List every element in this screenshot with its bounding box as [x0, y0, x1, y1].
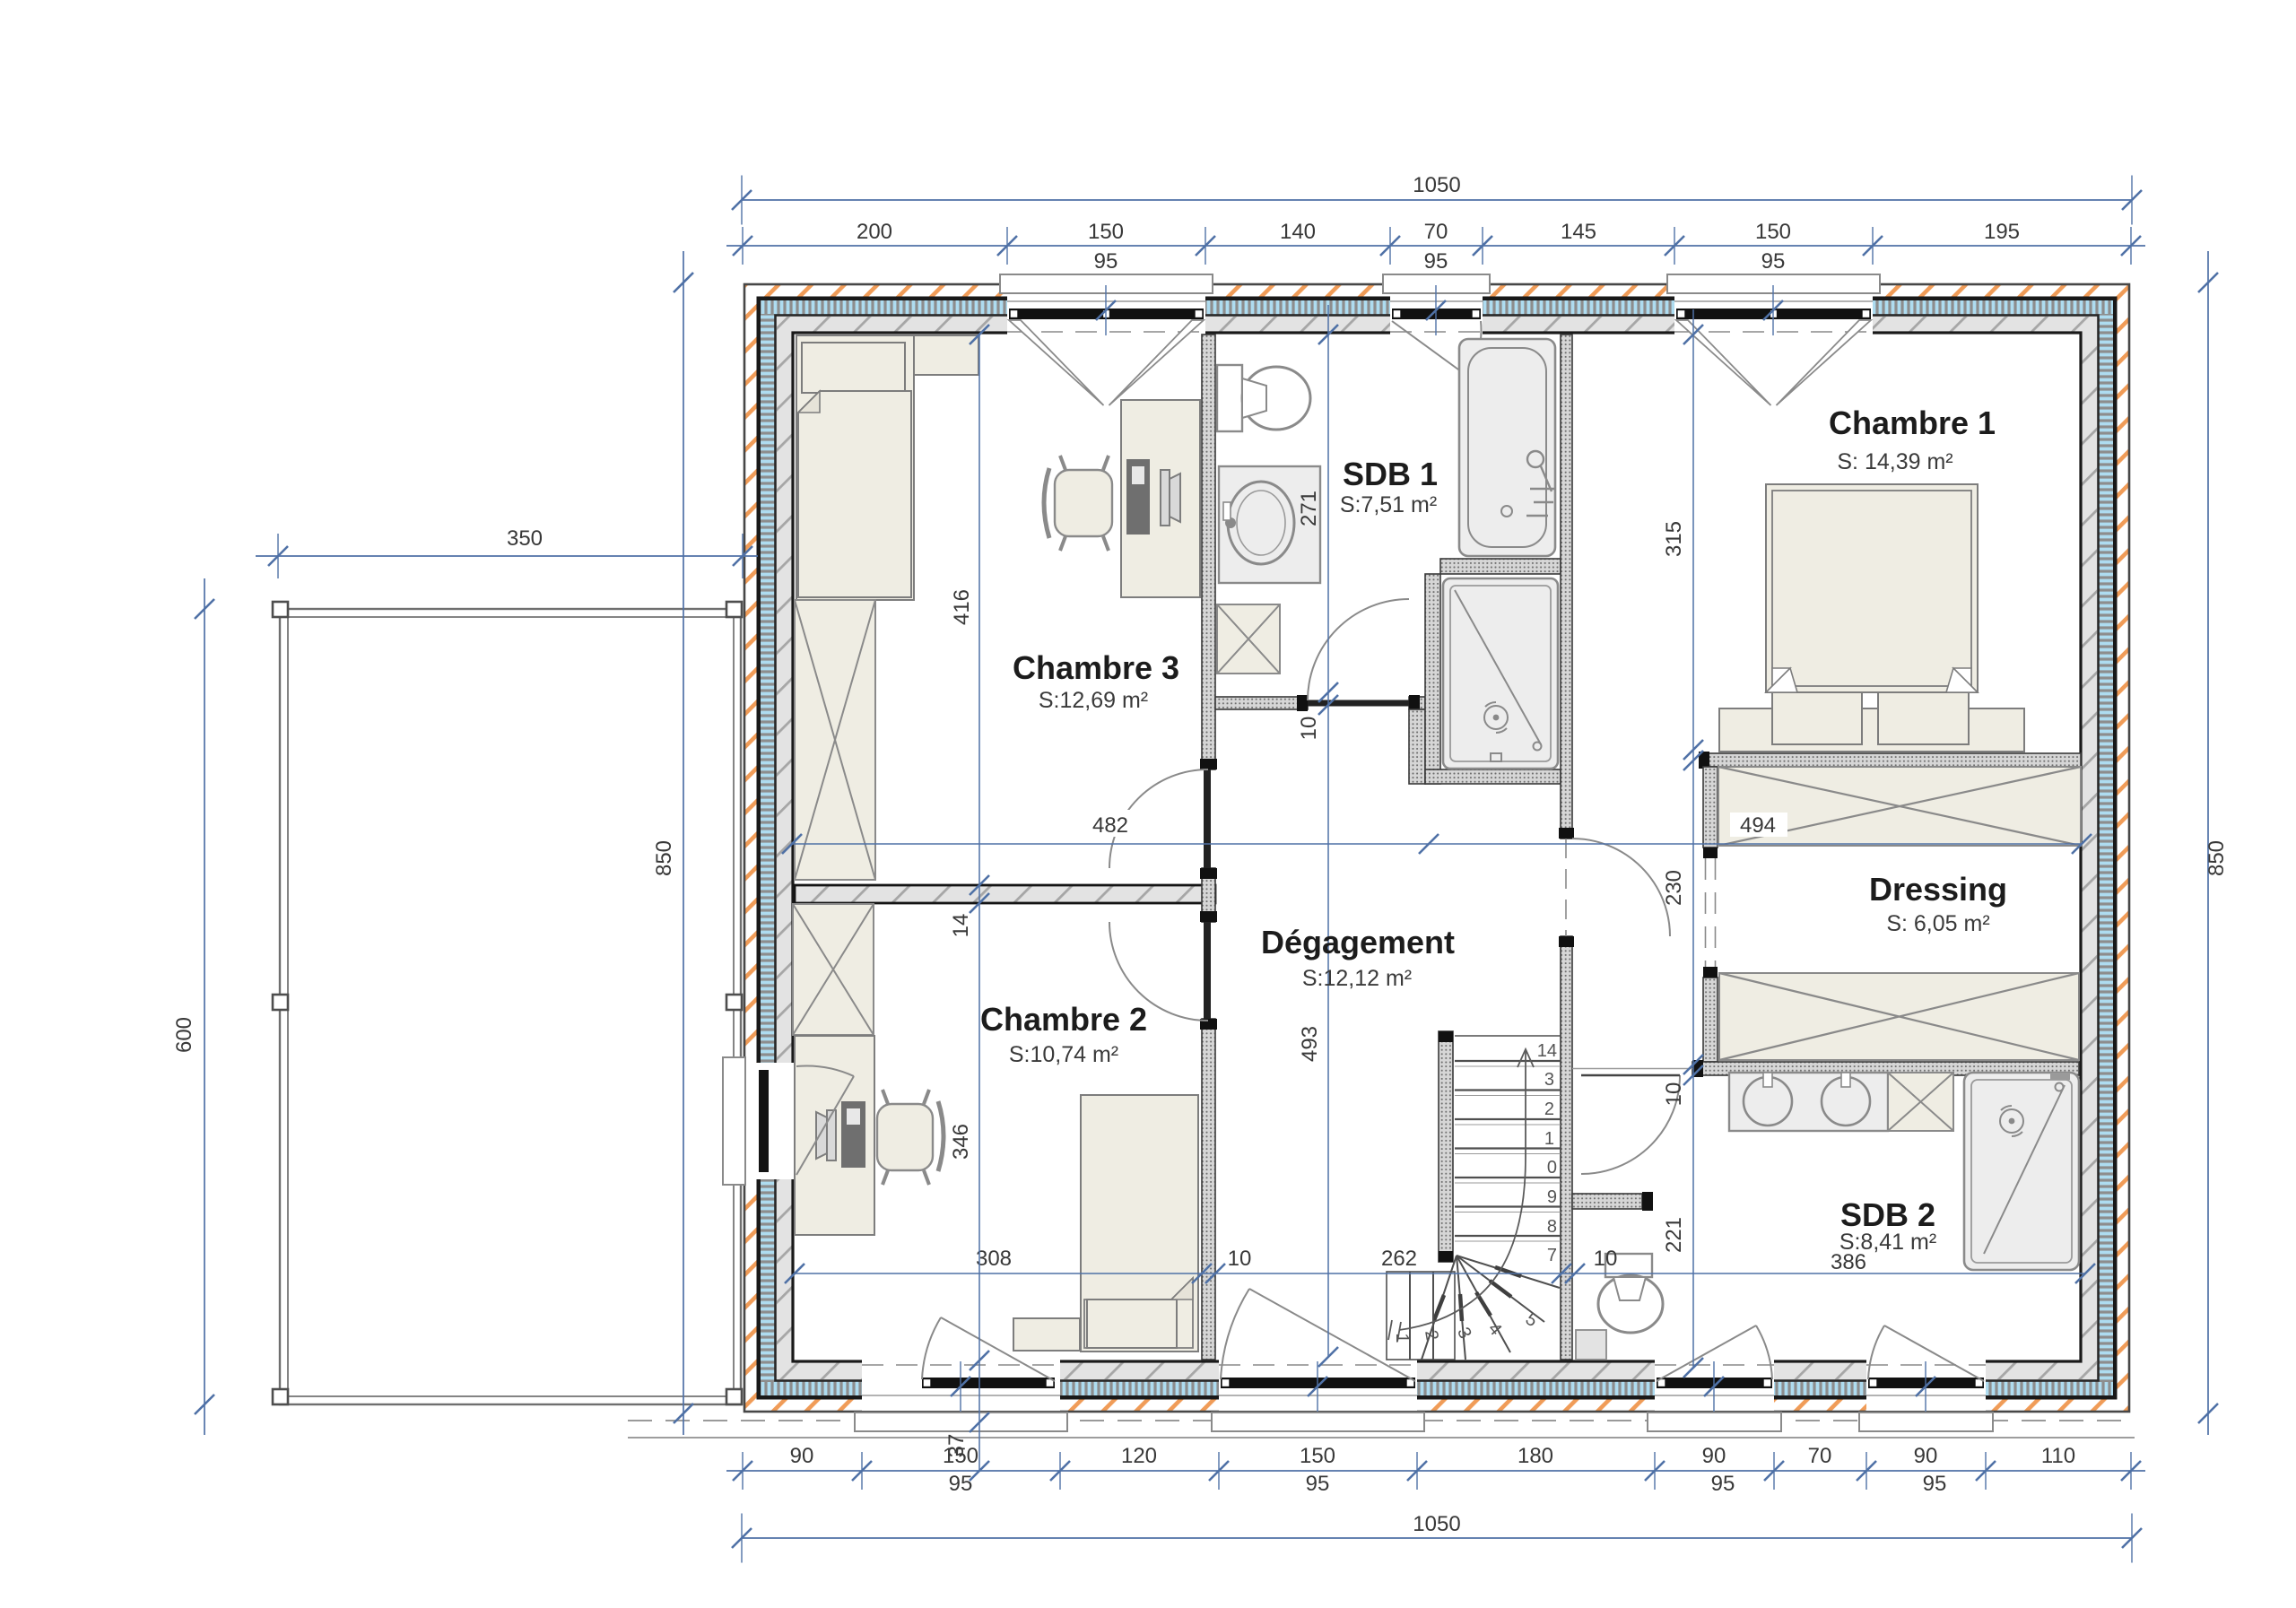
svg-text:145: 145	[1561, 220, 1596, 244]
svg-text:70: 70	[1424, 220, 1448, 244]
svg-text:221: 221	[1662, 1217, 1686, 1253]
svg-text:95: 95	[1094, 249, 1118, 274]
svg-text:SDB 2: SDB 2	[1840, 1196, 1935, 1233]
svg-text:S:8,41 m²: S:8,41 m²	[1839, 1230, 1936, 1255]
svg-text:S:12,69 m²: S:12,69 m²	[1039, 688, 1148, 713]
svg-text:10: 10	[1297, 717, 1321, 741]
svg-text:37: 37	[944, 1434, 969, 1458]
svg-text:494: 494	[1740, 813, 1776, 838]
svg-text:1: 1	[1544, 1129, 1554, 1149]
svg-text:195: 195	[1984, 220, 2020, 244]
svg-text:346: 346	[949, 1124, 973, 1160]
svg-text:95: 95	[949, 1472, 973, 1496]
svg-text:95: 95	[1306, 1472, 1330, 1496]
svg-text:850: 850	[2205, 840, 2229, 876]
svg-text:Chambre 1: Chambre 1	[1829, 404, 1996, 441]
svg-text:493: 493	[1298, 1026, 1322, 1062]
svg-text:8: 8	[1547, 1217, 1557, 1237]
svg-text:7: 7	[1547, 1246, 1557, 1265]
svg-text:10: 10	[1594, 1247, 1618, 1271]
svg-text:110: 110	[2041, 1444, 2075, 1468]
svg-text:1050: 1050	[1413, 173, 1460, 197]
svg-text:150: 150	[1755, 220, 1791, 244]
svg-text:140: 140	[1280, 220, 1316, 244]
svg-text:S:10,74 m²: S:10,74 m²	[1009, 1042, 1118, 1067]
svg-text:9: 9	[1547, 1187, 1557, 1207]
svg-text:262: 262	[1381, 1247, 1417, 1271]
svg-text:200: 200	[857, 220, 892, 244]
svg-text:180: 180	[1518, 1444, 1553, 1468]
svg-text:S: 14,39 m²: S: 14,39 m²	[1837, 449, 1952, 474]
svg-text:14: 14	[1537, 1041, 1557, 1061]
svg-text:315: 315	[1662, 521, 1686, 557]
svg-text:95: 95	[1761, 249, 1786, 274]
svg-text:150: 150	[1088, 220, 1124, 244]
svg-text:Chambre 2: Chambre 2	[980, 1001, 1147, 1038]
svg-text:90: 90	[1914, 1444, 1938, 1468]
svg-text:850: 850	[652, 840, 676, 876]
svg-text:Chambre 3: Chambre 3	[1013, 649, 1179, 686]
svg-text:1050: 1050	[1413, 1512, 1460, 1536]
svg-text:70: 70	[1808, 1444, 1832, 1468]
svg-text:14: 14	[949, 914, 973, 938]
svg-text:95: 95	[1923, 1472, 1947, 1496]
svg-text:271: 271	[1297, 491, 1321, 526]
svg-text:150: 150	[1300, 1444, 1335, 1468]
svg-text:10: 10	[1228, 1247, 1252, 1271]
svg-text:10: 10	[1662, 1082, 1686, 1107]
svg-text:350: 350	[507, 526, 543, 551]
svg-text:Dressing: Dressing	[1869, 871, 2007, 908]
svg-text:120: 120	[1121, 1444, 1157, 1468]
svg-text:3: 3	[1544, 1070, 1554, 1090]
svg-text:482: 482	[1092, 813, 1128, 838]
svg-text:SDB 1: SDB 1	[1343, 456, 1438, 492]
svg-text:1: 1	[1392, 1333, 1412, 1343]
svg-text:90: 90	[790, 1444, 814, 1468]
svg-text:95: 95	[1711, 1472, 1735, 1496]
svg-text:95: 95	[1424, 249, 1448, 274]
svg-text:90: 90	[1702, 1444, 1726, 1468]
svg-text:600: 600	[172, 1017, 196, 1053]
svg-text:2: 2	[1544, 1100, 1554, 1119]
svg-text:Dégagement: Dégagement	[1261, 924, 1455, 960]
svg-text:S:12,12 m²: S:12,12 m²	[1302, 966, 1412, 991]
svg-text:230: 230	[1662, 870, 1686, 906]
svg-text:S: 6,05 m²: S: 6,05 m²	[1886, 911, 1989, 936]
svg-text:S:7,51 m²: S:7,51 m²	[1340, 492, 1437, 517]
svg-text:308: 308	[976, 1247, 1012, 1271]
svg-text:416: 416	[950, 589, 974, 625]
svg-text:0: 0	[1547, 1158, 1557, 1178]
